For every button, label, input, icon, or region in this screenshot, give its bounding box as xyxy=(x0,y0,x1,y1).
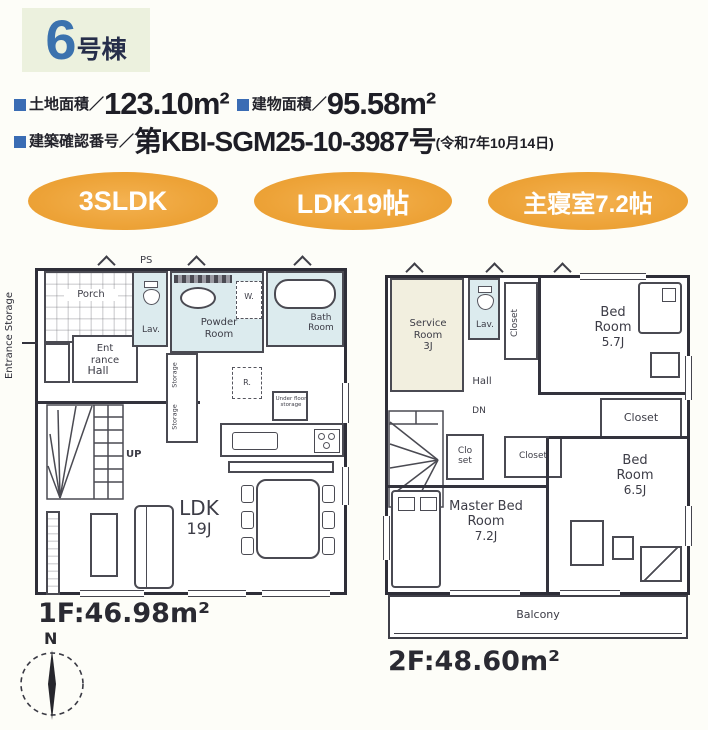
floor1-plan: PS Porch Ent rance Lav. W. Powder Room xyxy=(35,268,347,595)
toilet-icon xyxy=(143,289,160,305)
building-area-bullet-icon xyxy=(237,99,249,111)
service-size: 3J xyxy=(400,341,456,353)
hall-label-1f: Hall xyxy=(76,365,120,378)
washer-label: W. xyxy=(239,292,259,301)
tv-board xyxy=(46,511,60,595)
wall xyxy=(388,485,548,488)
side-table xyxy=(90,513,118,577)
kitchen-lower-cabinet xyxy=(228,461,334,473)
storage-label: Storage xyxy=(171,404,179,429)
bed1-name: Bed Room xyxy=(580,306,646,336)
floor1-area-label: 1F:46.98m² xyxy=(38,598,210,629)
window xyxy=(685,506,692,546)
sink-icon xyxy=(232,432,278,450)
floor2-plan: Service Room 3J Lav. Closet Bed Room 5.7… xyxy=(385,275,690,595)
toilet-icon xyxy=(144,281,158,288)
badge-master-size-label: 主寝室7.2帖 xyxy=(523,184,652,219)
powder-label: Powder Room xyxy=(186,317,252,340)
ldk-label: LDK 19J xyxy=(168,497,230,538)
balcony-label: Balcony xyxy=(390,609,686,622)
window xyxy=(685,356,692,400)
master-label: Master Bed Room 7.2J xyxy=(432,500,540,544)
unit-suffix: 号棟 xyxy=(77,30,127,66)
balcony-rail xyxy=(394,633,682,634)
compass-needle-icon xyxy=(48,650,56,720)
confirmation-info-line: 建築確認番号／ 第KBI-SGM25-10-3987号 (令和7年10月14日) xyxy=(14,128,554,156)
compass-north-label: N xyxy=(44,629,57,648)
building-area-label: 建物面積／ xyxy=(252,93,327,114)
lavatory-label: Lav. xyxy=(471,320,499,330)
callout-line xyxy=(22,342,38,344)
porch-label: Porch xyxy=(64,289,118,301)
confirmation-label: 建築確認番号／ xyxy=(29,130,134,151)
area-info-line: 土地面積／ 123.10m² 建物面積／ 95.58m² xyxy=(14,88,435,119)
burner-icon xyxy=(318,433,325,440)
bed1-label: Bed Room 5.7J xyxy=(580,306,646,350)
confirmation-value: 第KBI-SGM25-10-3987号 xyxy=(134,128,436,156)
stairs-up xyxy=(46,404,124,500)
counter-icon xyxy=(174,275,232,283)
badge-3sldk-label: 3SLDK xyxy=(79,186,168,217)
underfloor-storage-box: Under floor storage xyxy=(272,391,308,421)
balcony: Balcony xyxy=(388,595,688,639)
wall xyxy=(538,392,687,395)
room-service: Service Room 3J xyxy=(390,278,464,392)
wall xyxy=(549,436,687,439)
window xyxy=(80,590,144,597)
chair-icon xyxy=(322,537,335,555)
ldk-name: LDK xyxy=(168,497,230,520)
storage-label: Storage xyxy=(171,362,179,387)
badge-ldk-size-label: LDK19帖 xyxy=(297,182,410,221)
bed1-size: 5.7J xyxy=(580,336,646,350)
ldk-size: 19J xyxy=(168,520,230,538)
entrance-label: Ent rance xyxy=(82,343,128,366)
kitchen-counter xyxy=(220,423,344,457)
room-lavatory-2f: Lav. xyxy=(468,278,500,340)
flyer-page: 6 号棟 土地面積／ 123.10m² 建物面積／ 95.58m² 建築確認番号… xyxy=(0,0,708,730)
room-closet-top: Closet xyxy=(504,282,538,360)
sofa-icon xyxy=(134,505,174,589)
pillow-icon xyxy=(398,497,415,511)
room-bath: Bath Room xyxy=(266,271,344,347)
burner-icon xyxy=(323,442,330,449)
unit-number: 6 xyxy=(45,12,74,68)
badge-3sldk: 3SLDK xyxy=(28,172,218,230)
closet-label: Closet xyxy=(613,412,669,425)
wall xyxy=(546,438,549,592)
unit-title-box: 6 号棟 xyxy=(22,8,150,72)
master-size: 7.2J xyxy=(432,530,540,544)
window xyxy=(262,590,330,597)
up-label: UP xyxy=(126,449,141,461)
underfloor-storage-label: Under floor storage xyxy=(275,396,307,409)
confirmation-bullet-icon xyxy=(14,136,26,148)
window xyxy=(342,383,349,423)
hall-label-2f: Hall xyxy=(464,376,500,388)
badge-master-size: 主寝室7.2帖 xyxy=(488,172,688,230)
wall xyxy=(538,278,541,395)
room-closet-small: Clo set xyxy=(446,434,484,480)
pillow-icon xyxy=(420,497,437,511)
desk-icon xyxy=(650,352,680,378)
room-powder: W. Powder Room xyxy=(170,271,264,353)
dining-table xyxy=(256,479,320,559)
window xyxy=(342,467,349,505)
fridge-box: R. xyxy=(232,367,262,399)
bed2-label: Bed Room 6.5J xyxy=(604,454,666,498)
sofa-line xyxy=(146,507,147,587)
desk-icon xyxy=(570,520,604,566)
chair-icon xyxy=(241,537,254,555)
land-area-label: 土地面積／ xyxy=(29,93,104,114)
service-label: Service Room 3J xyxy=(400,318,456,353)
room-entrance-storage xyxy=(44,343,70,383)
bed-icon xyxy=(638,282,682,334)
room-porch: Porch xyxy=(44,271,134,343)
room-closet-mid: Closet xyxy=(504,436,562,478)
land-area-bullet-icon xyxy=(14,99,26,111)
chair-icon xyxy=(322,485,335,503)
bed2-size: 6.5J xyxy=(604,484,666,498)
master-name: Master Bed Room xyxy=(432,500,540,530)
chair-icon xyxy=(612,536,634,560)
washbasin-icon xyxy=(180,287,216,309)
bed-icon xyxy=(391,490,441,588)
room-lavatory-1f: Lav. xyxy=(132,271,168,347)
bath-label: Bath Room xyxy=(300,313,342,334)
badge-ldk-size: LDK19帖 xyxy=(254,172,452,230)
bathtub-icon xyxy=(274,279,336,309)
confirmation-date: (令和7年10月14日) xyxy=(436,133,554,153)
bed2-name: Bed Room xyxy=(604,454,666,484)
toilet-icon xyxy=(478,286,492,293)
window xyxy=(383,516,390,560)
closet-label: Closet xyxy=(510,309,520,337)
entrance-storage-label: Entrance Storage xyxy=(4,292,15,379)
burner-icon xyxy=(328,433,335,440)
washer-box: W. xyxy=(236,281,262,319)
chair-icon xyxy=(241,485,254,503)
room-storage: Storage Storage xyxy=(166,353,198,443)
window xyxy=(580,273,646,280)
toilet-icon xyxy=(477,294,494,310)
building-area-value: 95.58m² xyxy=(327,88,435,119)
ps-label: PS xyxy=(140,255,152,267)
chair-icon xyxy=(322,511,335,529)
land-area-value: 123.10m² xyxy=(104,88,229,119)
chair-icon xyxy=(241,511,254,529)
window xyxy=(188,590,246,597)
fridge-label: R. xyxy=(237,378,257,387)
dn-label: DN xyxy=(466,406,492,416)
closet-small-label: Clo set xyxy=(453,446,477,467)
stove-icon xyxy=(314,429,340,453)
room-closet-right: Closet xyxy=(600,398,682,438)
lavatory-label: Lav. xyxy=(136,325,166,335)
service-name: Service Room xyxy=(400,318,456,341)
vent-icon xyxy=(553,262,571,280)
corner-desk-icon xyxy=(640,546,682,582)
floor2-area-label: 2F:48.60m² xyxy=(388,646,560,677)
pillow-icon xyxy=(662,288,676,302)
compass: N xyxy=(10,626,96,728)
